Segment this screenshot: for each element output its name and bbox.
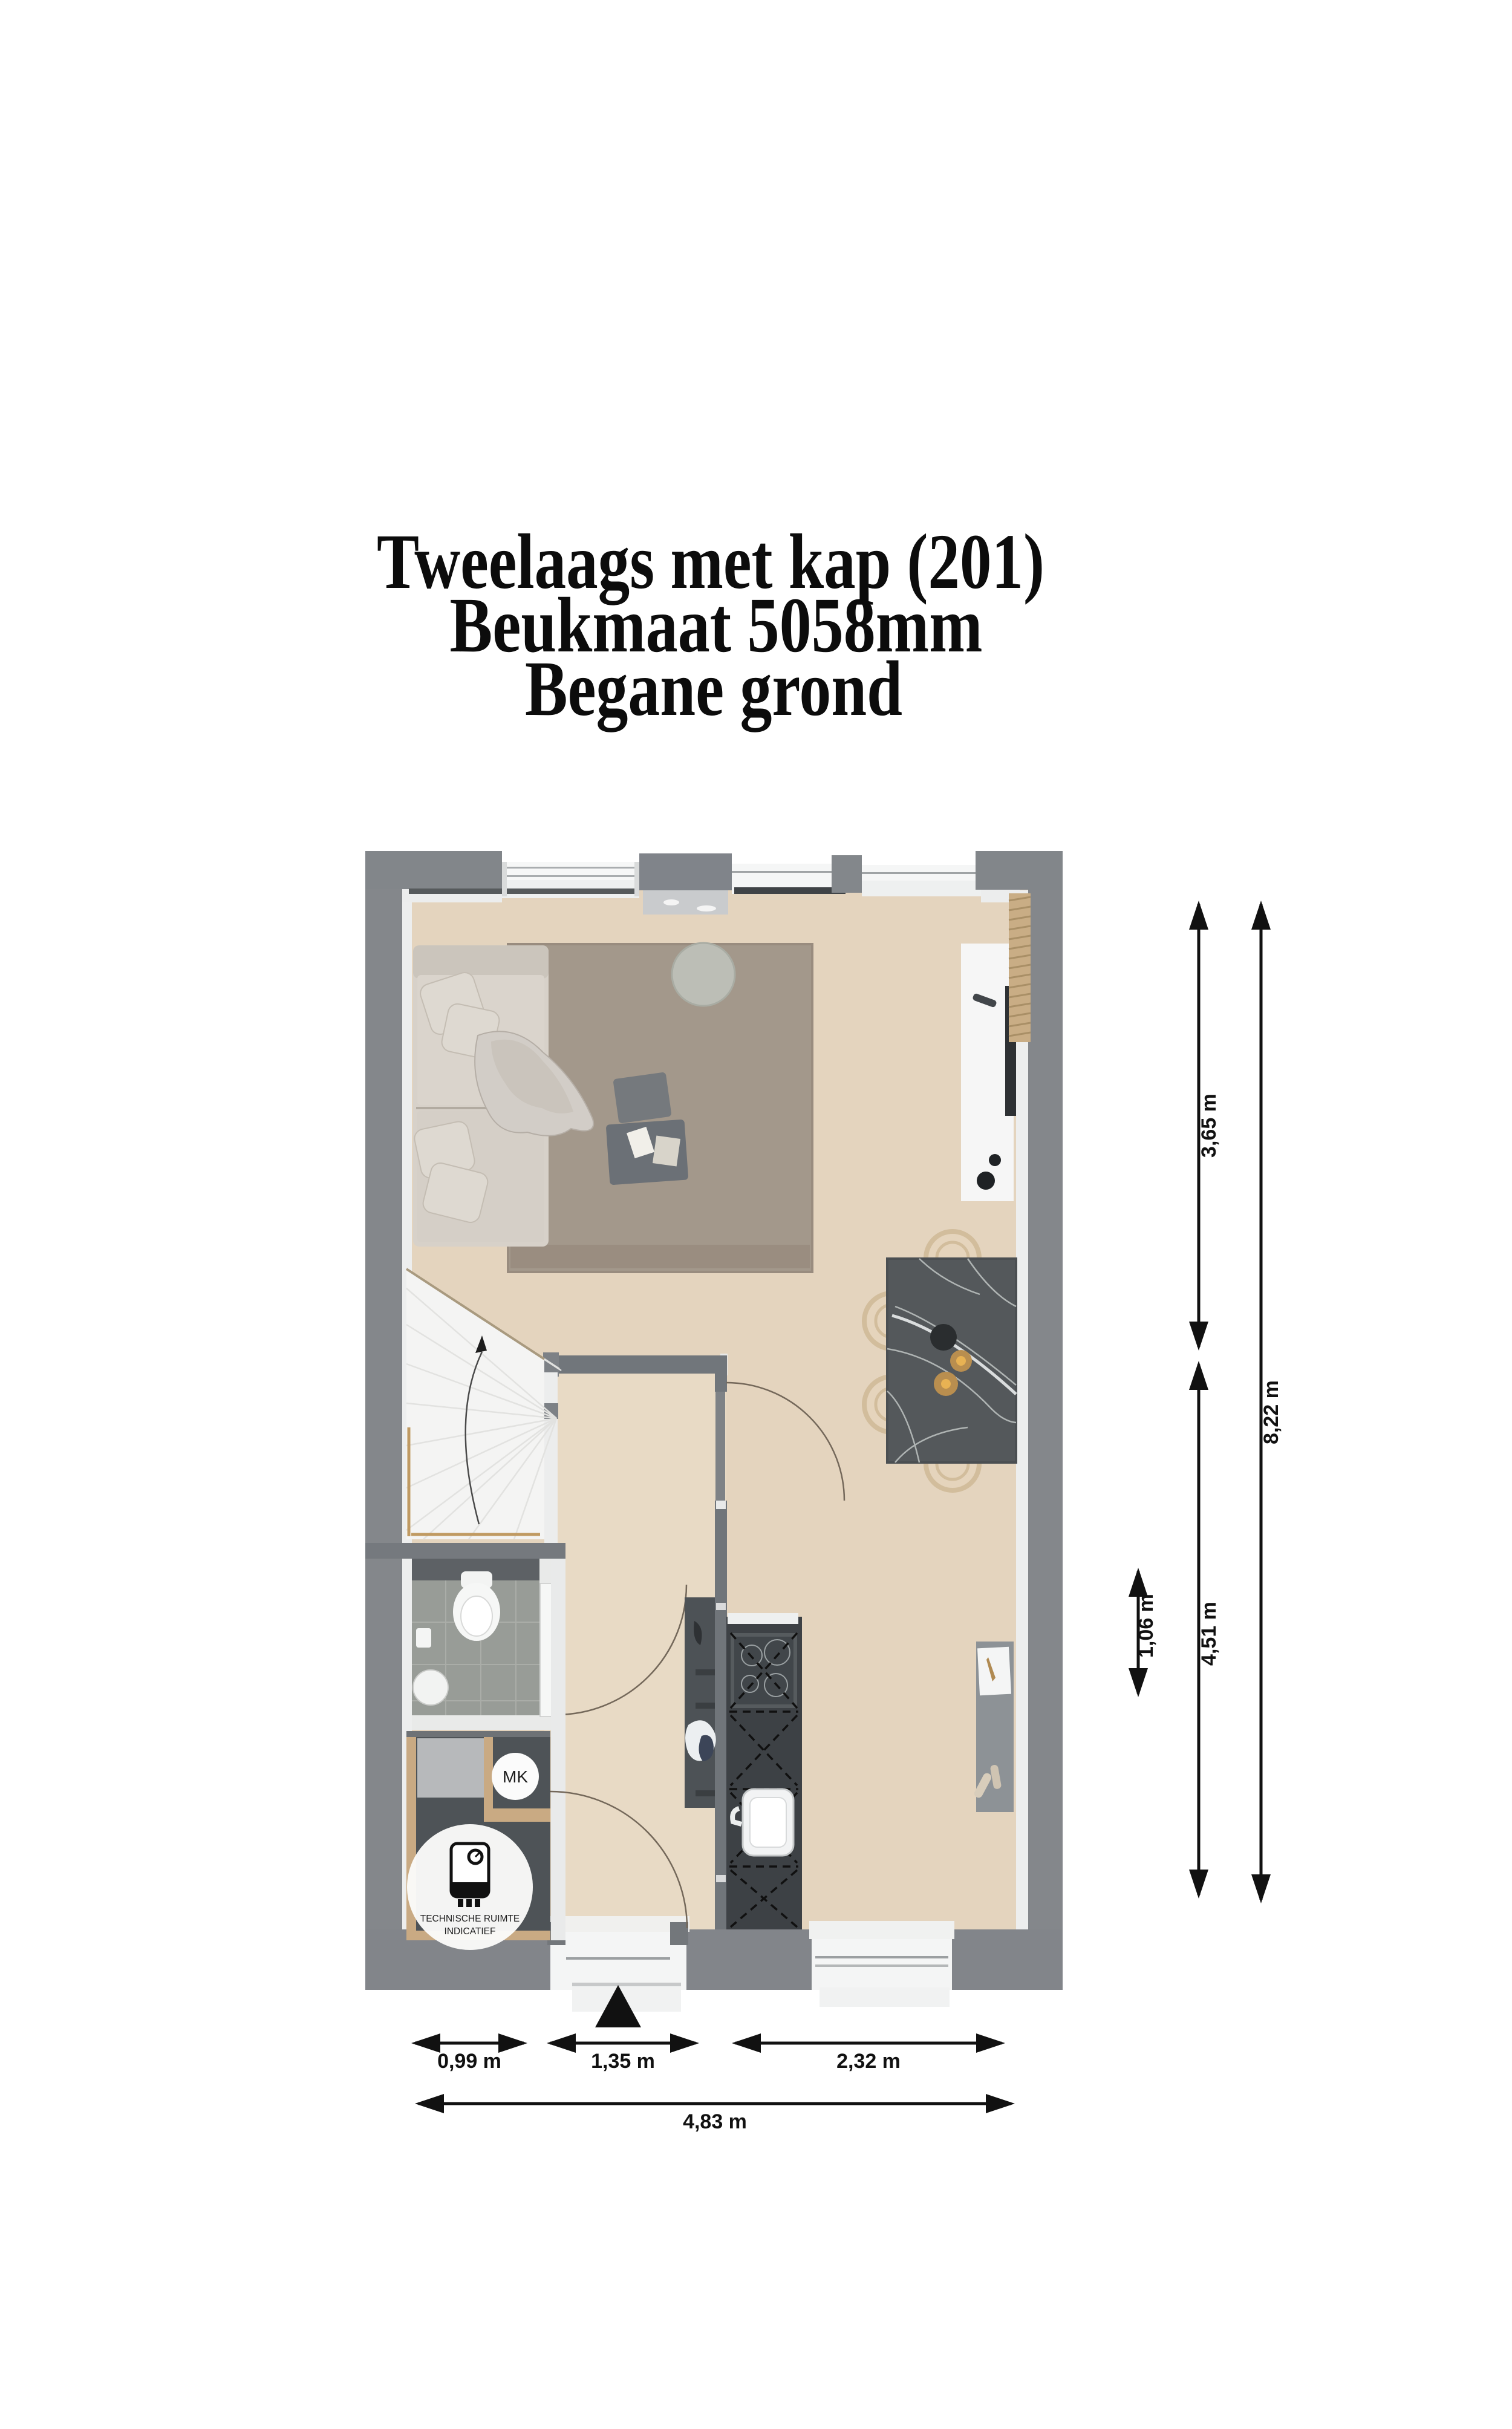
svg-text:Begane grond: Begane grond (525, 645, 902, 732)
svg-text:1,35 m: 1,35 m (591, 2050, 655, 2073)
svg-text:3,65 m: 3,65 m (1198, 1094, 1220, 1158)
svg-text:MK: MK (503, 1767, 528, 1786)
svg-text:INDICATIEF: INDICATIEF (445, 1926, 496, 1937)
svg-text:2,32 m: 2,32 m (836, 2050, 901, 2073)
svg-text:4,83 m: 4,83 m (683, 2110, 747, 2133)
svg-text:8,22 m: 8,22 m (1260, 1380, 1283, 1444)
svg-text:1,06 m: 1,06 m (1135, 1594, 1158, 1658)
svg-text:0,99 m: 0,99 m (437, 2050, 501, 2073)
svg-text:4,51 m: 4,51 m (1198, 1602, 1220, 1666)
svg-text:TECHNISCHE RUIMTE: TECHNISCHE RUIMTE (420, 1914, 520, 1924)
